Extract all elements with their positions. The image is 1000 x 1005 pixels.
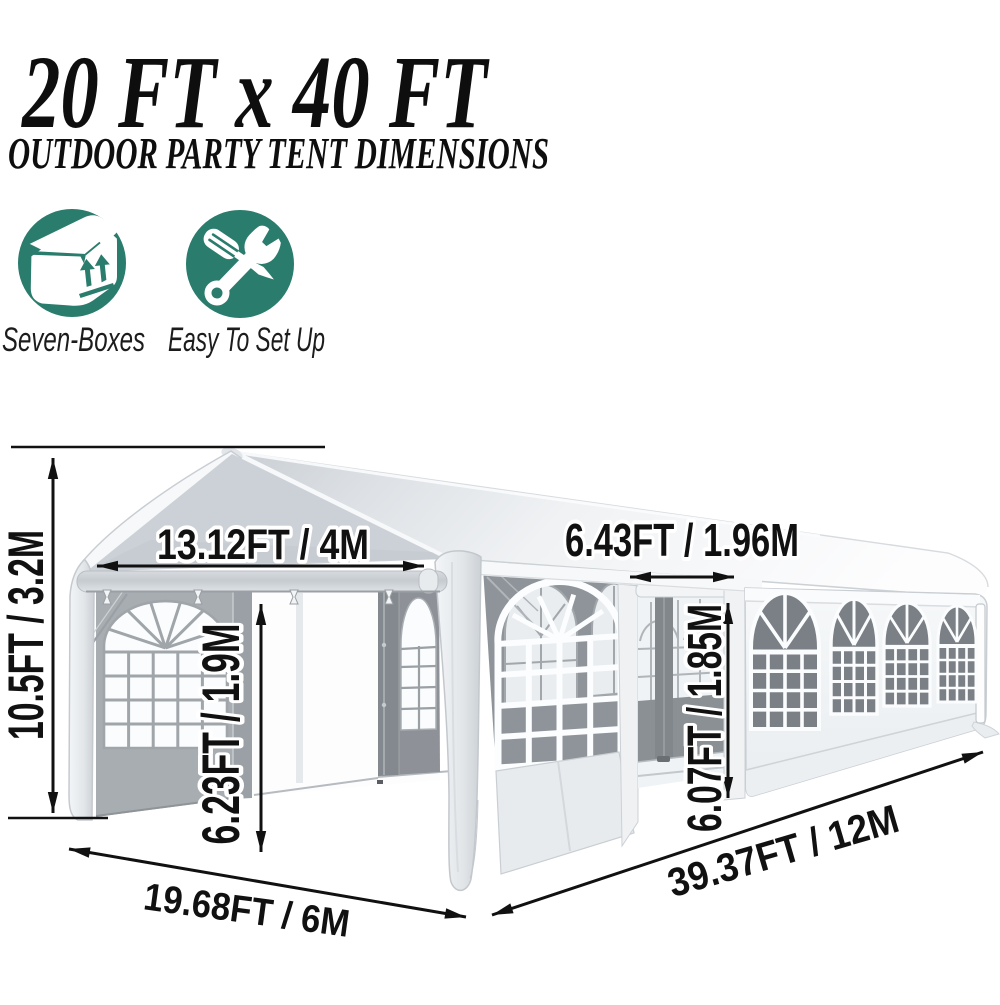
svg-text:6.07FT / 1.85M: 6.07FT / 1.85M [679, 604, 732, 832]
svg-text:6.23FT / 1.9M: 6.23FT / 1.9M [192, 624, 251, 845]
svg-text:6.43FT / 1.96M: 6.43FT / 1.96M [565, 514, 799, 566]
svg-text:10.5FT / 3.2M: 10.5FT / 3.2M [0, 530, 54, 740]
svg-text:OUTDOOR PARTY TENT DIMENSIONS: OUTDOOR PARTY TENT DIMENSIONS [8, 129, 549, 178]
svg-text:Easy To Set Up: Easy To Set Up [168, 321, 325, 359]
svg-text:13.12FT / 4M: 13.12FT / 4M [157, 521, 369, 569]
svg-text:Seven-Boxes: Seven-Boxes [2, 321, 145, 359]
